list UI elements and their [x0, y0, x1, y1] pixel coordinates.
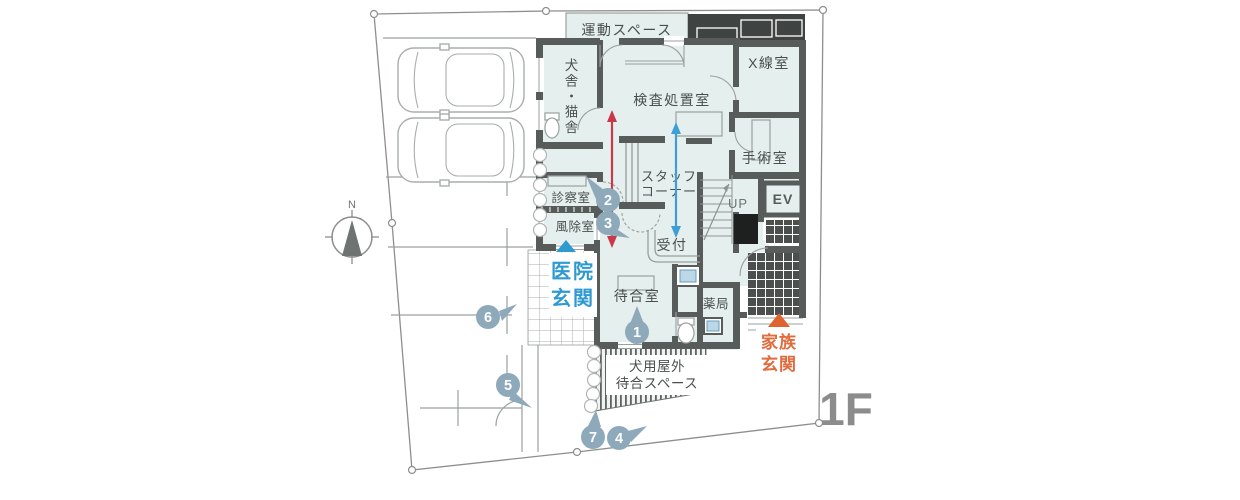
route-marker-7-number: 7	[589, 430, 597, 446]
parked-car-1	[398, 44, 524, 116]
sink-waiting	[676, 266, 700, 286]
room-label-reception: 受付	[657, 237, 688, 253]
elevator-label: EV	[773, 191, 794, 207]
elevator: EV	[764, 183, 802, 215]
room-label-windbreak: 風除室	[555, 219, 594, 234]
route-marker-4: 4	[607, 426, 647, 450]
compass: N	[325, 199, 379, 264]
family-entrance-label: 家族 玄関	[756, 313, 803, 377]
room-label-exercise: 運動スペース	[581, 22, 672, 38]
family-entrance-line1: 家族	[761, 332, 797, 352]
family-entrance-porch-tiles	[748, 252, 806, 316]
compass-north-label: N	[348, 199, 356, 211]
dog-waiting-label: 犬用屋外 待合スペース	[606, 355, 708, 395]
route-marker-6: 6	[476, 304, 517, 329]
room-label-waiting: 待合室	[614, 288, 661, 304]
route-marker-4-number: 4	[615, 431, 623, 447]
route-marker-3-number: 3	[604, 216, 612, 232]
dog-waiting-line2: 待合スペース	[616, 376, 698, 391]
understair-void	[734, 214, 758, 244]
room-label-pharmacy: 薬局	[703, 297, 729, 311]
room-label-staff-line2: コーナー	[641, 184, 697, 199]
route-marker-6-number: 6	[484, 310, 492, 326]
room-label-kennel: 犬舎・猫舎	[563, 58, 579, 136]
room-label-xray: X線室	[748, 55, 790, 71]
clinic-entrance-line2: 玄関	[551, 286, 595, 310]
family-entrance-line2: 玄関	[761, 354, 797, 374]
route-marker-7: 7	[581, 410, 605, 449]
route-marker-5: 5	[496, 373, 532, 408]
floor-plan-page: N	[0, 0, 1240, 500]
dog-waiting-line1: 犬用屋外	[629, 359, 685, 374]
parked-car-2	[398, 114, 524, 186]
toilet-waiting	[678, 318, 694, 343]
floor-plan-svg: N	[0, 0, 1240, 500]
stairs-up-label: UP	[728, 196, 748, 211]
sink-pharmacy	[704, 318, 722, 334]
route-marker-5-number: 5	[504, 378, 512, 394]
room-label-staff-line1: スタッフ	[641, 169, 697, 184]
room-label-consult: 診察室	[551, 190, 590, 205]
route-marker-1-number: 1	[633, 325, 641, 341]
elevator-hall-tiles	[765, 220, 802, 244]
clinic-entrance-line1: 医院	[551, 259, 595, 283]
floor-label-1f: 1F	[819, 383, 873, 435]
toilet-kennel	[545, 113, 559, 138]
room-label-surgery: 手術室	[742, 150, 789, 166]
route-marker-2-number: 2	[604, 193, 612, 209]
room-label-exam: 検査処置室	[633, 92, 711, 108]
